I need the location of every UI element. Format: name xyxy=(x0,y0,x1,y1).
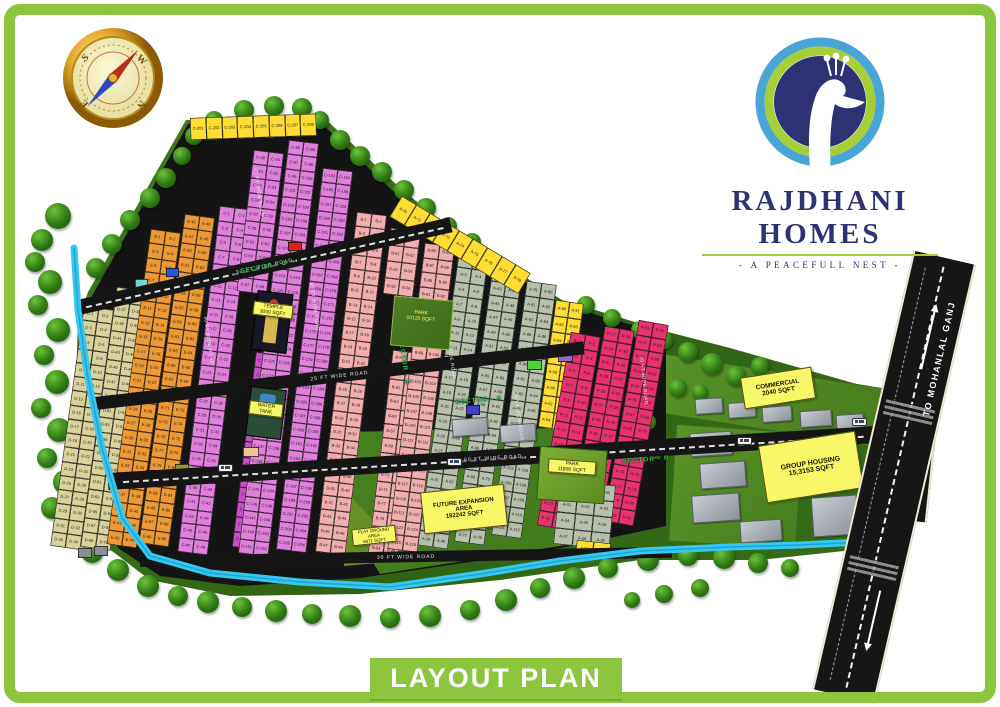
special-plot xyxy=(466,405,480,415)
park-r xyxy=(536,446,608,505)
plot-cell: C-208 xyxy=(300,114,317,137)
tree-icon xyxy=(25,252,45,272)
building-icon xyxy=(699,460,747,489)
tree-icon xyxy=(751,357,769,375)
tree-icon xyxy=(781,559,799,577)
brand-divider xyxy=(702,254,938,256)
brand-tagline: - A PEACEFULL NEST - xyxy=(683,260,957,270)
tree-icon xyxy=(46,318,70,342)
tree-icon xyxy=(350,146,370,166)
building-icon xyxy=(694,397,723,415)
tree-icon xyxy=(419,605,441,627)
tree-icon xyxy=(120,210,140,230)
tree-icon xyxy=(372,162,392,182)
plot-cell: C-205 xyxy=(253,115,270,138)
building-icon xyxy=(451,417,488,437)
plot-cell: C-206 xyxy=(291,537,308,553)
tree-icon xyxy=(530,578,550,598)
vehicle-icon xyxy=(447,458,462,466)
tree-icon xyxy=(45,370,69,394)
building-icon xyxy=(691,492,741,523)
plot-cell: C-48 xyxy=(192,539,209,555)
tree-icon xyxy=(264,96,284,116)
tree-icon xyxy=(265,600,287,622)
tree-icon xyxy=(37,448,57,468)
tree-icon xyxy=(28,295,48,315)
tree-icon xyxy=(156,168,176,188)
plot-cell: A-37 xyxy=(553,528,573,546)
tree-icon xyxy=(86,258,106,278)
tree-icon xyxy=(137,575,159,597)
plot-cell: R-82 xyxy=(618,509,635,526)
road-name-label: 30 FT WIDE ROAD xyxy=(374,553,438,560)
layout-plan-banner: LAYOUT PLAN xyxy=(370,658,622,699)
plot-cell: E-90 xyxy=(154,531,171,547)
tree-icon xyxy=(598,558,618,578)
tree-icon xyxy=(655,585,673,603)
tree-icon xyxy=(701,353,723,375)
layout-plan-poster: D-1D-2D-3D-4D-5D-6D-7D-8D-9D-10D-11D-12D… xyxy=(0,0,1000,707)
building-icon xyxy=(761,405,792,423)
peacock-logo-icon xyxy=(683,30,957,178)
vehicle-icon xyxy=(852,418,867,426)
special-plot xyxy=(78,548,92,558)
tree-icon xyxy=(678,342,698,362)
tree-icon xyxy=(45,203,71,229)
tree-icon xyxy=(330,130,350,150)
plot-cell: A-36 xyxy=(592,516,612,534)
tree-icon xyxy=(603,309,621,327)
tree-icon xyxy=(380,608,400,628)
tree-icon xyxy=(460,600,480,620)
plot-cell: B-52 xyxy=(402,246,419,264)
building-icon xyxy=(739,519,782,544)
brand-name: RAJDHANI HOMES xyxy=(683,185,957,251)
brand-logo: RAJDHANI HOMES - A PEACEFULL NEST - xyxy=(683,30,957,230)
tree-icon xyxy=(197,591,219,613)
tree-icon xyxy=(748,553,768,573)
plot-cell: C-206 xyxy=(269,115,286,138)
plot-cell: A-112 xyxy=(506,522,523,539)
tree-icon xyxy=(302,604,322,624)
tree-icon xyxy=(102,234,122,254)
tree-icon xyxy=(107,559,129,581)
plot-cell: A-78 xyxy=(469,529,486,546)
special-plot xyxy=(94,546,108,556)
special-plot xyxy=(527,360,542,370)
plot-cell: B-56 xyxy=(398,279,415,297)
tree-icon xyxy=(678,546,698,566)
plot-cell: B-126 xyxy=(402,536,419,552)
temple-icon xyxy=(262,316,278,343)
plot-block-C: C-201C-202C-203C-204C-205C-206C-207C-208 xyxy=(190,114,317,140)
tree-icon xyxy=(713,547,735,569)
special-plot xyxy=(243,447,259,457)
building-icon xyxy=(799,409,832,428)
plot-cell: C-202 xyxy=(206,117,223,140)
plot-cell: C-207 xyxy=(284,114,301,137)
plot-cell: A-35 xyxy=(574,514,594,532)
special-plot xyxy=(166,268,179,277)
tree-icon xyxy=(339,605,361,627)
plot-cell: E-44 xyxy=(122,532,139,548)
plot-cell: C-204 xyxy=(237,116,254,139)
tree-icon xyxy=(31,398,51,418)
future-expansion-label: FUTURE EXPANSION AREA 182242 SQFT xyxy=(420,484,508,535)
tree-icon xyxy=(495,589,517,611)
tree-icon xyxy=(173,147,191,165)
tree-icon xyxy=(31,229,53,251)
park-b xyxy=(390,295,454,350)
temple-feature xyxy=(250,290,293,354)
tree-icon xyxy=(34,345,54,365)
tree-icon xyxy=(691,579,709,597)
tree-icon xyxy=(563,567,585,589)
plot-cell: A-34 xyxy=(555,512,575,530)
tree-icon xyxy=(669,379,687,397)
vehicle-icon xyxy=(737,437,752,445)
tree-icon xyxy=(232,597,252,617)
plot-cell: C-203 xyxy=(221,116,238,139)
plot-cell: C-201 xyxy=(190,117,207,140)
banner-text: LAYOUT PLAN xyxy=(390,663,602,694)
plot-cell: B-54 xyxy=(400,263,417,281)
tree-icon xyxy=(140,188,160,208)
plot-cell: A-40 xyxy=(433,533,450,550)
plot-cell: A-51 xyxy=(568,302,584,320)
road-name-label: 60 FT WIDE ROAD xyxy=(461,453,525,463)
tree-icon xyxy=(168,586,188,606)
vehicle-icon xyxy=(218,464,233,472)
tree-icon xyxy=(38,270,62,294)
compass-icon: S W E N xyxy=(57,24,169,136)
tree-icon xyxy=(624,592,640,608)
